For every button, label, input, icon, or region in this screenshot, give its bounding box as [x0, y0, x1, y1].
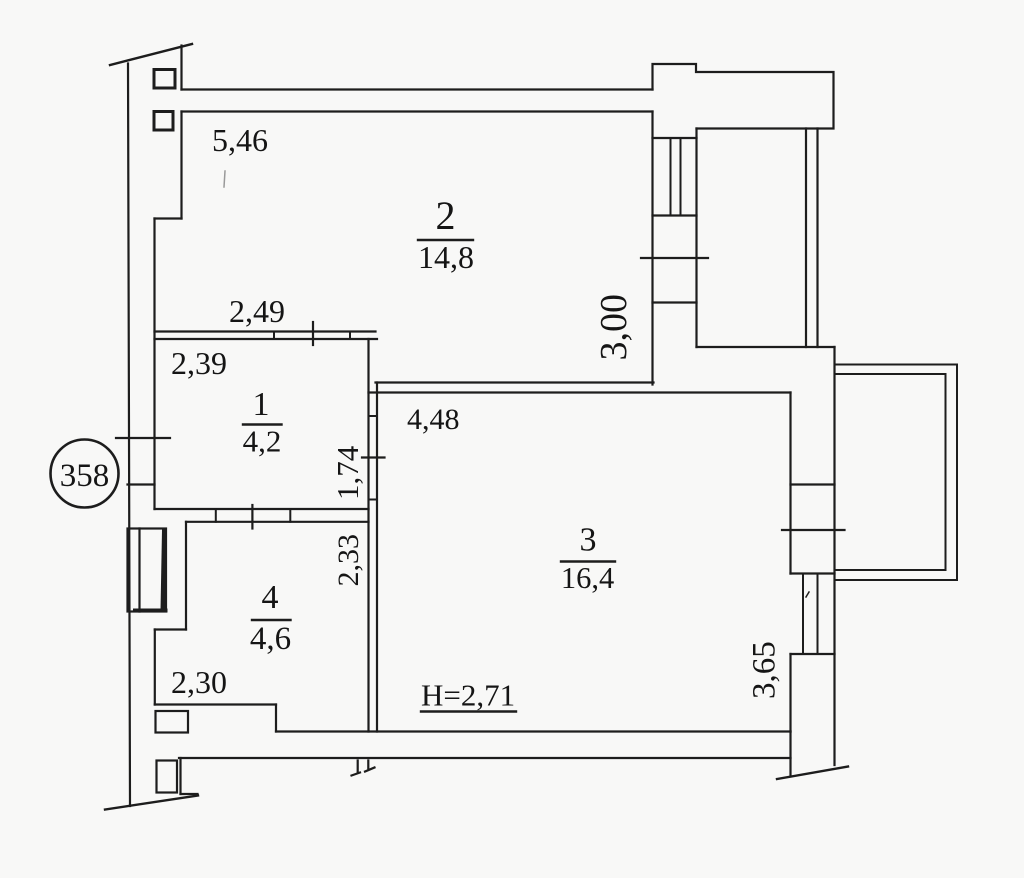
svg-text:4,6: 4,6 [250, 621, 291, 657]
svg-text:3,00: 3,00 [593, 294, 635, 361]
svg-text:4,48: 4,48 [407, 403, 460, 436]
svg-text:2,30: 2,30 [171, 664, 227, 700]
svg-text:5,46: 5,46 [212, 122, 268, 158]
svg-text:14,8: 14,8 [418, 239, 474, 275]
svg-text:2,49: 2,49 [229, 293, 285, 329]
svg-text:358: 358 [60, 458, 110, 494]
svg-text:H=2,71: H=2,71 [421, 678, 515, 713]
svg-text:2,33: 2,33 [332, 534, 365, 587]
svg-text:2,39: 2,39 [171, 345, 227, 381]
svg-text:3,65: 3,65 [747, 641, 783, 699]
svg-text:1,74: 1,74 [330, 445, 365, 500]
svg-text:2: 2 [436, 193, 456, 238]
svg-text:16,4: 16,4 [561, 561, 614, 595]
svg-text:4,2: 4,2 [243, 424, 282, 459]
svg-text:1: 1 [253, 386, 270, 423]
svg-text:4: 4 [262, 579, 279, 616]
svg-text:3: 3 [580, 522, 597, 559]
